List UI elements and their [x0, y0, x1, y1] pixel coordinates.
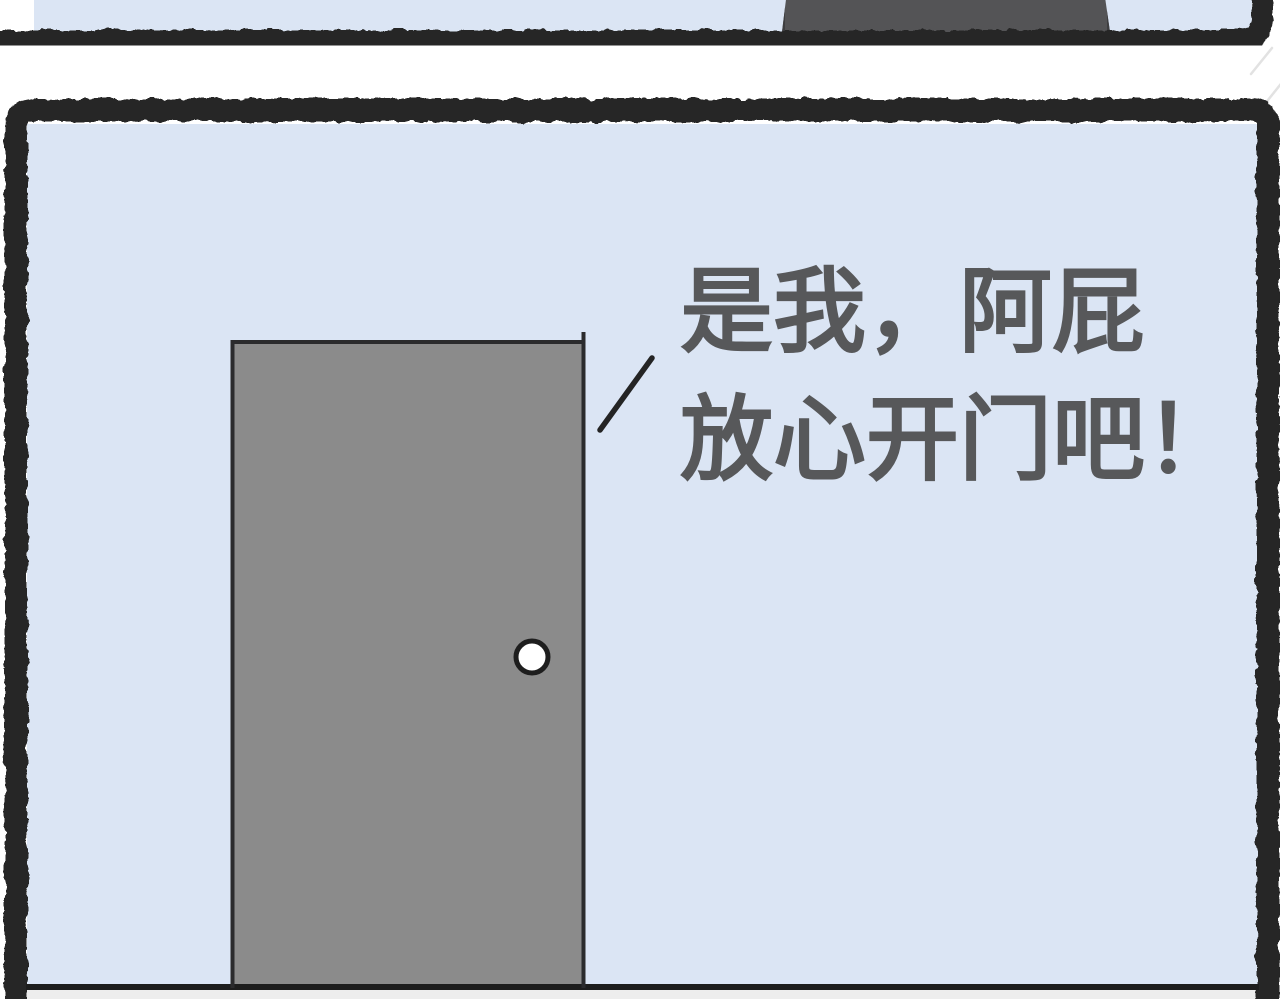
gutter-scratch-mark: [1260, 80, 1280, 110]
door: [232, 340, 584, 988]
floor: [27, 990, 1259, 999]
comic-page: 是我，阿屁 放心开门吧！: [0, 0, 1280, 999]
previous-panel-door-top: [782, 0, 1110, 32]
speech-line-2: 放心开门吧！: [680, 376, 1238, 504]
gutter-scratch-mark: [1251, 48, 1272, 74]
speech-text: 是我，阿屁 放心开门吧！: [680, 248, 1238, 504]
speech-line-1: 是我，阿屁: [680, 248, 1238, 376]
